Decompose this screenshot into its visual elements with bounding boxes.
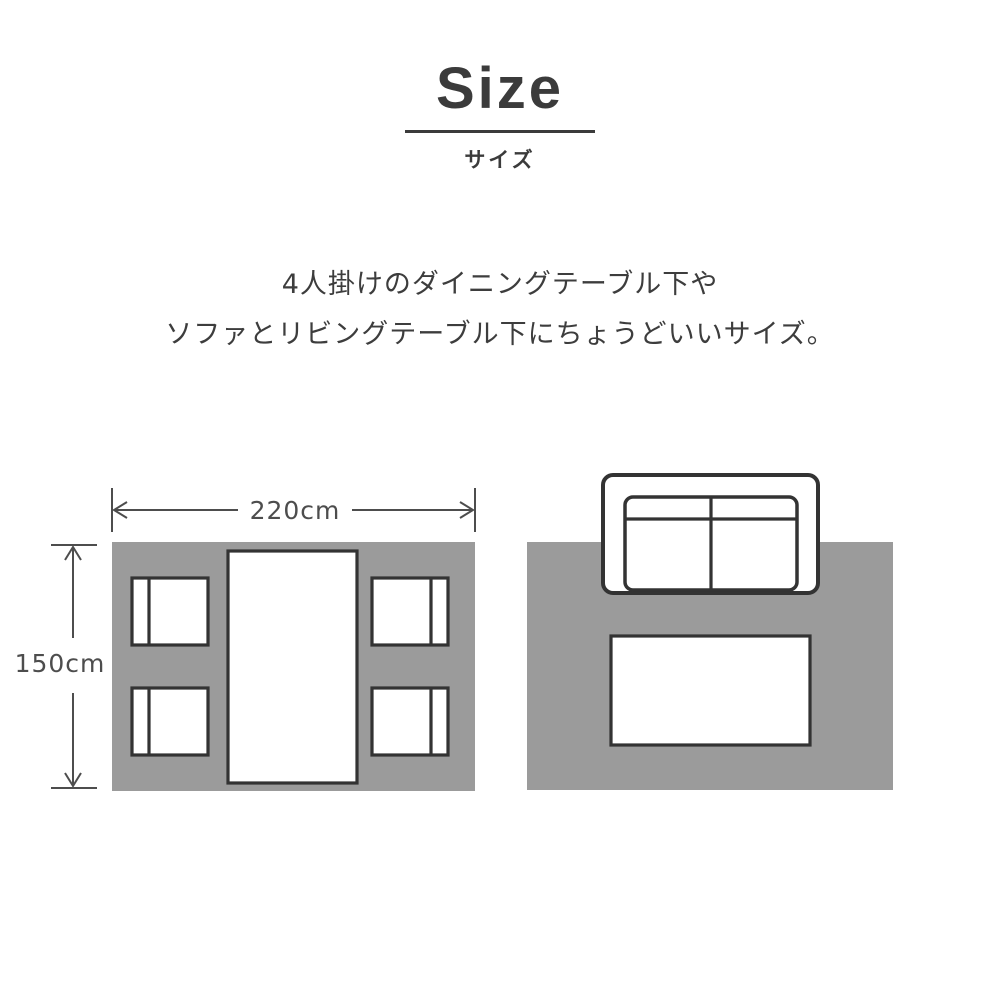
chair-seat — [132, 688, 208, 755]
chair-bottom-right — [372, 688, 448, 755]
dining-table — [228, 551, 357, 783]
height-dimension-label: 150cm — [15, 649, 106, 678]
size-section: Size サイズ 4人掛けのダイニングテーブル下や ソファとリビングテーブル下に… — [0, 0, 1000, 1000]
chair-seat — [372, 688, 448, 755]
chair-top-left — [132, 578, 208, 645]
chair-top-right — [372, 578, 448, 645]
width-dimension-label: 220cm — [250, 496, 341, 525]
description-line-2: ソファとリビングテーブル下にちょうどいいサイズ。 — [0, 310, 1000, 360]
section-subtitle: サイズ — [0, 144, 1000, 174]
height-dimension: 150cm — [15, 545, 106, 788]
title-underline — [405, 130, 595, 133]
chair-seat — [132, 578, 208, 645]
size-description: 4人掛けのダイニングテーブル下や ソファとリビングテーブル下にちょうどいいサイズ… — [0, 260, 1000, 360]
section-title: Size — [0, 58, 1000, 120]
chair-seat — [372, 578, 448, 645]
size-diagrams: 220cm 150cm — [0, 460, 1000, 840]
description-line-1: 4人掛けのダイニングテーブル下や — [0, 260, 1000, 310]
sofa — [603, 475, 818, 593]
living-diagram — [527, 475, 893, 790]
dining-diagram: 220cm 150cm — [15, 488, 475, 791]
chair-bottom-left — [132, 688, 208, 755]
living-table — [611, 636, 810, 745]
width-dimension: 220cm — [112, 488, 475, 532]
